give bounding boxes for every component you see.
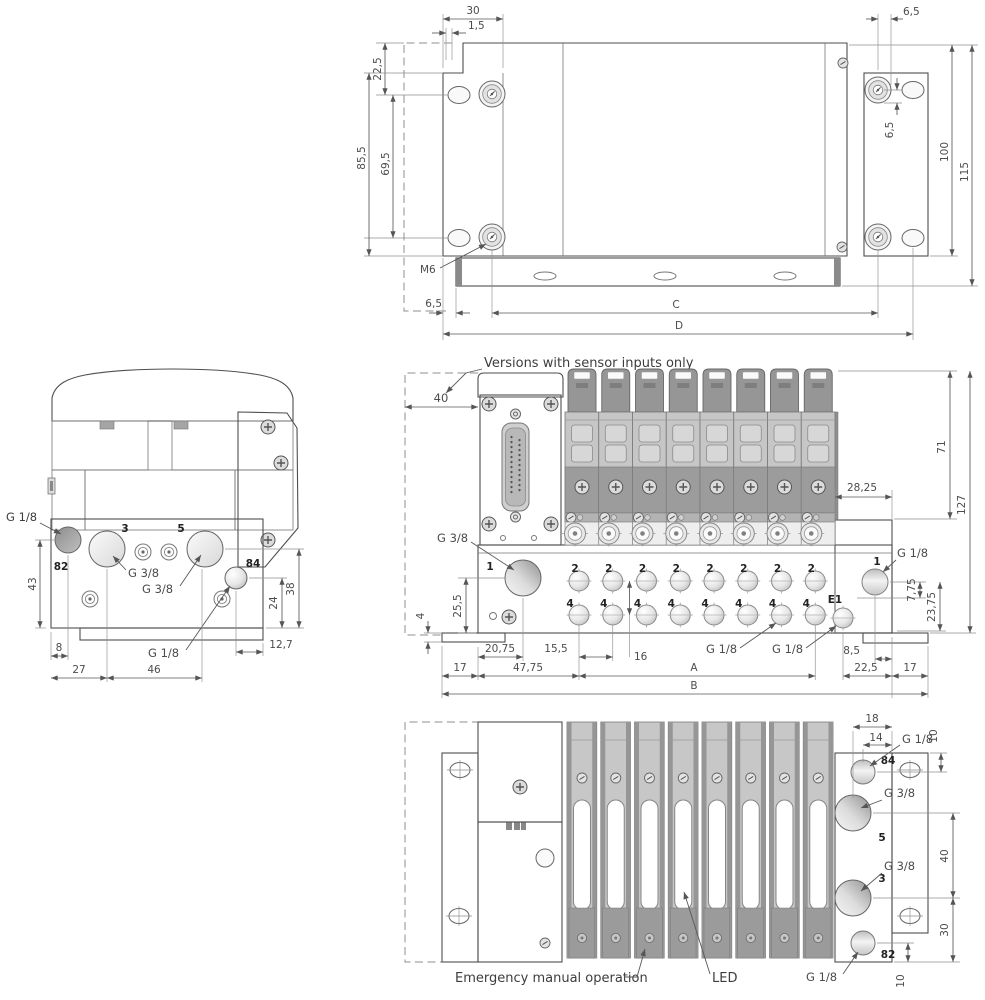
valve-window — [740, 425, 761, 442]
manifold-body-rear — [443, 43, 847, 256]
valve-station: 2 4 — [798, 369, 835, 628]
end-plate-cap — [478, 373, 563, 397]
hole — [536, 849, 554, 867]
dim-7-75: 7,75 — [906, 578, 918, 601]
valve-station: 2 4 — [562, 369, 599, 628]
label-4: 4 — [701, 598, 708, 610]
dim-4: 4 — [415, 612, 427, 619]
screw-icon — [609, 480, 623, 494]
small-port — [135, 544, 151, 560]
valve-window — [740, 445, 761, 462]
manual-override-zone — [670, 908, 696, 958]
dim-38: 38 — [285, 582, 297, 595]
screw-icon — [811, 480, 825, 494]
port-2 — [735, 569, 760, 594]
foot-tab-left-bottom — [442, 753, 478, 962]
valve-window — [639, 445, 660, 462]
dim-1-5: 1,5 — [468, 20, 485, 32]
screw-icon — [769, 513, 779, 523]
valve-window — [808, 425, 829, 442]
foot-tab-right — [863, 633, 928, 643]
valve-station: 2 4 — [697, 369, 734, 628]
led-window — [641, 800, 658, 910]
label-4: 4 — [634, 598, 641, 610]
screw-icon — [544, 397, 558, 411]
valve-window — [572, 425, 593, 442]
screw-icon — [482, 397, 496, 411]
valve-window — [605, 425, 626, 442]
label-2: 2 — [571, 563, 578, 575]
label-82: 82 — [54, 561, 69, 573]
dim-46: 46 — [147, 664, 161, 676]
port-1-front — [505, 560, 541, 596]
valve-slice-bottom — [736, 722, 766, 958]
screw-icon — [577, 773, 587, 783]
mounting-hole — [448, 230, 470, 247]
port-5-bottom — [835, 795, 871, 831]
label-g38-5: G 3/8 — [884, 786, 915, 800]
valve-window — [774, 425, 795, 442]
label-g18-1: G 1/8 — [897, 546, 928, 560]
dim-127: 127 — [956, 495, 968, 515]
port-3-bottom — [835, 880, 871, 916]
pilot-block — [478, 722, 562, 822]
screw-icon — [575, 480, 589, 494]
screw-icon — [802, 513, 812, 523]
label-m6: M6 — [420, 264, 436, 276]
valve-window — [808, 445, 829, 462]
port-3 — [89, 531, 125, 567]
view-bottom: 84 5 3 82 18 14 G 1/8 10 G 3/8 G 3/8 40 … — [405, 713, 960, 988]
small-port — [161, 544, 177, 560]
small-port — [214, 591, 230, 607]
valve-stations-front: 2 4 2 4 — [562, 369, 835, 628]
screw-icon — [274, 456, 288, 470]
rail-slot — [534, 272, 556, 280]
dim-17-left: 17 — [453, 662, 466, 674]
label-g18-82: G 1/8 — [6, 510, 37, 524]
dim-6-5-top: 6,5 — [903, 6, 920, 18]
label-emergency-manual-operation: Emergency manual operation — [455, 971, 648, 986]
dim-a: A — [690, 662, 698, 674]
manual-override-zone — [772, 908, 798, 958]
label-g38-1: G 3/8 — [437, 531, 468, 545]
dim-d: D — [675, 320, 683, 332]
dim-18: 18 — [865, 713, 878, 725]
label-2: 2 — [808, 563, 815, 575]
dim-12-7: 12,7 — [269, 639, 292, 651]
screw-icon — [667, 513, 677, 523]
dim-22-5: 22,5 — [372, 57, 384, 80]
dim-10-top: 10 — [928, 729, 940, 742]
mounting-hole — [902, 230, 924, 247]
screw-icon — [712, 773, 722, 783]
label-g38-3: G 3/8 — [884, 859, 915, 873]
manual-override-zone — [569, 908, 595, 958]
screw-icon — [838, 58, 848, 68]
manual-override-zone — [637, 908, 663, 958]
port-2 — [769, 569, 794, 594]
mounting-hole — [448, 87, 470, 104]
port-2 — [668, 569, 693, 594]
dim-23-75: 23,75 — [926, 592, 938, 622]
valve-station: 2 4 — [731, 369, 768, 628]
label-g18-e1: G 1/8 — [772, 642, 803, 656]
screw-icon — [780, 773, 790, 783]
valve-slice-bottom — [601, 722, 631, 958]
valve-manifold-drawing: 30 1,5 6,5 6,5 22,5 69,5 85,5 100 115 M6… — [0, 0, 985, 1000]
small-port — [82, 591, 98, 607]
label-4: 4 — [735, 598, 742, 610]
screw-icon — [778, 480, 792, 494]
label-4: 4 — [566, 598, 573, 610]
valve-window — [774, 445, 795, 462]
screw-icon — [600, 513, 610, 523]
dim-16: 16 — [634, 651, 648, 663]
port-2 — [567, 569, 592, 594]
dim-25-5: 25,5 — [452, 594, 464, 617]
port-5 — [187, 531, 223, 567]
dim-15-5: 15,5 — [544, 643, 567, 655]
label-g38-3: G 3/8 — [128, 566, 159, 580]
port-84-bottom — [851, 760, 875, 784]
body-mid — [85, 470, 235, 530]
dim-27: 27 — [72, 664, 85, 676]
screw-icon — [678, 773, 688, 783]
valve-station: 2 4 — [765, 369, 802, 628]
screw-icon — [735, 513, 745, 523]
dim-8-5: 8,5 — [843, 645, 860, 657]
label-g18-4: G 1/8 — [706, 642, 737, 656]
label-82: 82 — [881, 949, 896, 961]
label-2: 2 — [639, 563, 646, 575]
valve-slice-bottom — [702, 722, 732, 958]
label-5: 5 — [177, 523, 184, 535]
screw-icon — [701, 513, 711, 523]
screw-icon — [513, 780, 527, 794]
dim-30: 30 — [939, 923, 951, 936]
valve-slice-bottom — [567, 722, 597, 958]
valve-slice-bottom — [803, 722, 833, 958]
label-g18-82: G 1/8 — [806, 970, 837, 984]
dim-47-75: 47,75 — [513, 662, 543, 674]
foot-tab — [80, 628, 263, 640]
valve-window — [707, 445, 728, 462]
valve-station: 2 4 — [663, 369, 700, 628]
screw-icon — [676, 480, 690, 494]
led-window — [776, 800, 793, 910]
dim-10-bottom: 10 — [895, 974, 907, 987]
valve-window — [639, 425, 660, 442]
valve-slice-bottom — [635, 722, 665, 958]
rail-slot — [654, 272, 676, 280]
screw-icon — [261, 420, 275, 434]
screw-icon — [634, 513, 644, 523]
screw-icon — [813, 773, 823, 783]
label-2: 2 — [774, 563, 781, 575]
view-front: 40 Versions with sensor inputs only 1 G … — [405, 356, 976, 698]
led-window — [742, 800, 759, 910]
port-2 — [600, 569, 625, 594]
led-window — [607, 800, 624, 910]
dim-20-75: 20,75 — [485, 643, 515, 655]
screw-icon — [643, 480, 657, 494]
led-window — [675, 800, 692, 910]
screw-icon — [502, 610, 516, 624]
rail-slot — [774, 272, 796, 280]
dim-71: 71 — [936, 440, 948, 453]
valve-station: 2 4 — [630, 369, 667, 628]
label-4: 4 — [668, 598, 675, 610]
label-2: 2 — [673, 563, 680, 575]
manual-override-zone — [738, 908, 764, 958]
port-84 — [225, 567, 247, 589]
led-window — [709, 800, 726, 910]
valve-slice-bottom — [770, 722, 800, 958]
label-led: LED — [712, 971, 737, 986]
valve-window — [707, 425, 728, 442]
label-2: 2 — [740, 563, 747, 575]
view-side: G 1/8 82 3 5 84 G 3/8 G 3/8 G 1/8 43 8 2… — [6, 369, 304, 682]
label-g38-5: G 3/8 — [142, 582, 173, 596]
screw-icon — [710, 480, 724, 494]
label-4: 4 — [803, 598, 810, 610]
view-rear: 30 1,5 6,5 6,5 22,5 69,5 85,5 100 115 M6… — [356, 5, 978, 340]
label-84: 84 — [246, 558, 261, 570]
dim-22-5: 22,5 — [854, 662, 877, 674]
dim-b: B — [690, 680, 697, 692]
dim-6-5-hole: 6,5 — [884, 122, 896, 139]
port-1-right — [862, 569, 888, 595]
label-3: 3 — [121, 523, 128, 535]
port-2 — [634, 569, 659, 594]
dim-17-right: 17 — [903, 662, 916, 674]
led-window — [574, 800, 591, 910]
screw-icon — [540, 938, 550, 948]
label-2: 2 — [706, 563, 713, 575]
dim-8: 8 — [56, 642, 63, 654]
manual-override-zone — [603, 908, 629, 958]
foot-tab-left — [442, 633, 505, 642]
screw-icon — [482, 517, 496, 531]
dim-115: 115 — [959, 162, 971, 182]
dim-24: 24 — [268, 596, 280, 610]
screw-icon — [744, 480, 758, 494]
label-1-right: 1 — [873, 556, 880, 568]
label-2: 2 — [605, 563, 612, 575]
dim-28-25: 28,25 — [847, 482, 877, 494]
label-e1: E1 — [828, 594, 842, 606]
label-g18-84: G 1/8 — [148, 646, 179, 660]
port-2 — [803, 569, 828, 594]
dim-85-5: 85,5 — [356, 146, 368, 169]
valve-window — [673, 425, 694, 442]
led-window — [810, 800, 827, 910]
mounting-hole — [902, 82, 924, 99]
label-1: 1 — [486, 561, 493, 573]
screw-icon — [746, 773, 756, 783]
port-82-bottom — [851, 931, 875, 955]
port-2 — [702, 569, 727, 594]
screw-icon — [611, 773, 621, 783]
label-5: 5 — [878, 832, 885, 844]
screw-icon — [645, 773, 655, 783]
screw-icon — [837, 242, 847, 252]
dim-30: 30 — [466, 5, 479, 17]
port-82 — [55, 527, 81, 553]
dim-40: 40 — [939, 849, 951, 862]
m6-screw-icon — [865, 224, 891, 250]
screw-icon — [566, 513, 576, 523]
m6-screw-icon — [479, 81, 505, 107]
dim-6-5-rail: 6,5 — [425, 298, 442, 310]
screw-icon — [544, 517, 558, 531]
manual-override-zone — [805, 908, 831, 958]
manual-override-zone — [704, 908, 730, 958]
dim-69-5: 69,5 — [380, 152, 392, 175]
dim-14: 14 — [869, 732, 883, 744]
dim-43: 43 — [27, 577, 39, 590]
valve-window — [605, 445, 626, 462]
label-4: 4 — [769, 598, 776, 610]
valve-stations-bottom — [567, 722, 833, 958]
label-4: 4 — [600, 598, 607, 610]
dim-c: C — [672, 299, 679, 311]
technical-drawing-page: 30 1,5 6,5 6,5 22,5 69,5 85,5 100 115 M6… — [0, 0, 985, 1000]
valve-window — [572, 445, 593, 462]
valve-station: 2 4 — [596, 369, 633, 628]
valve-dome — [52, 369, 293, 421]
valve-window — [673, 445, 694, 462]
dim-100: 100 — [939, 142, 951, 162]
